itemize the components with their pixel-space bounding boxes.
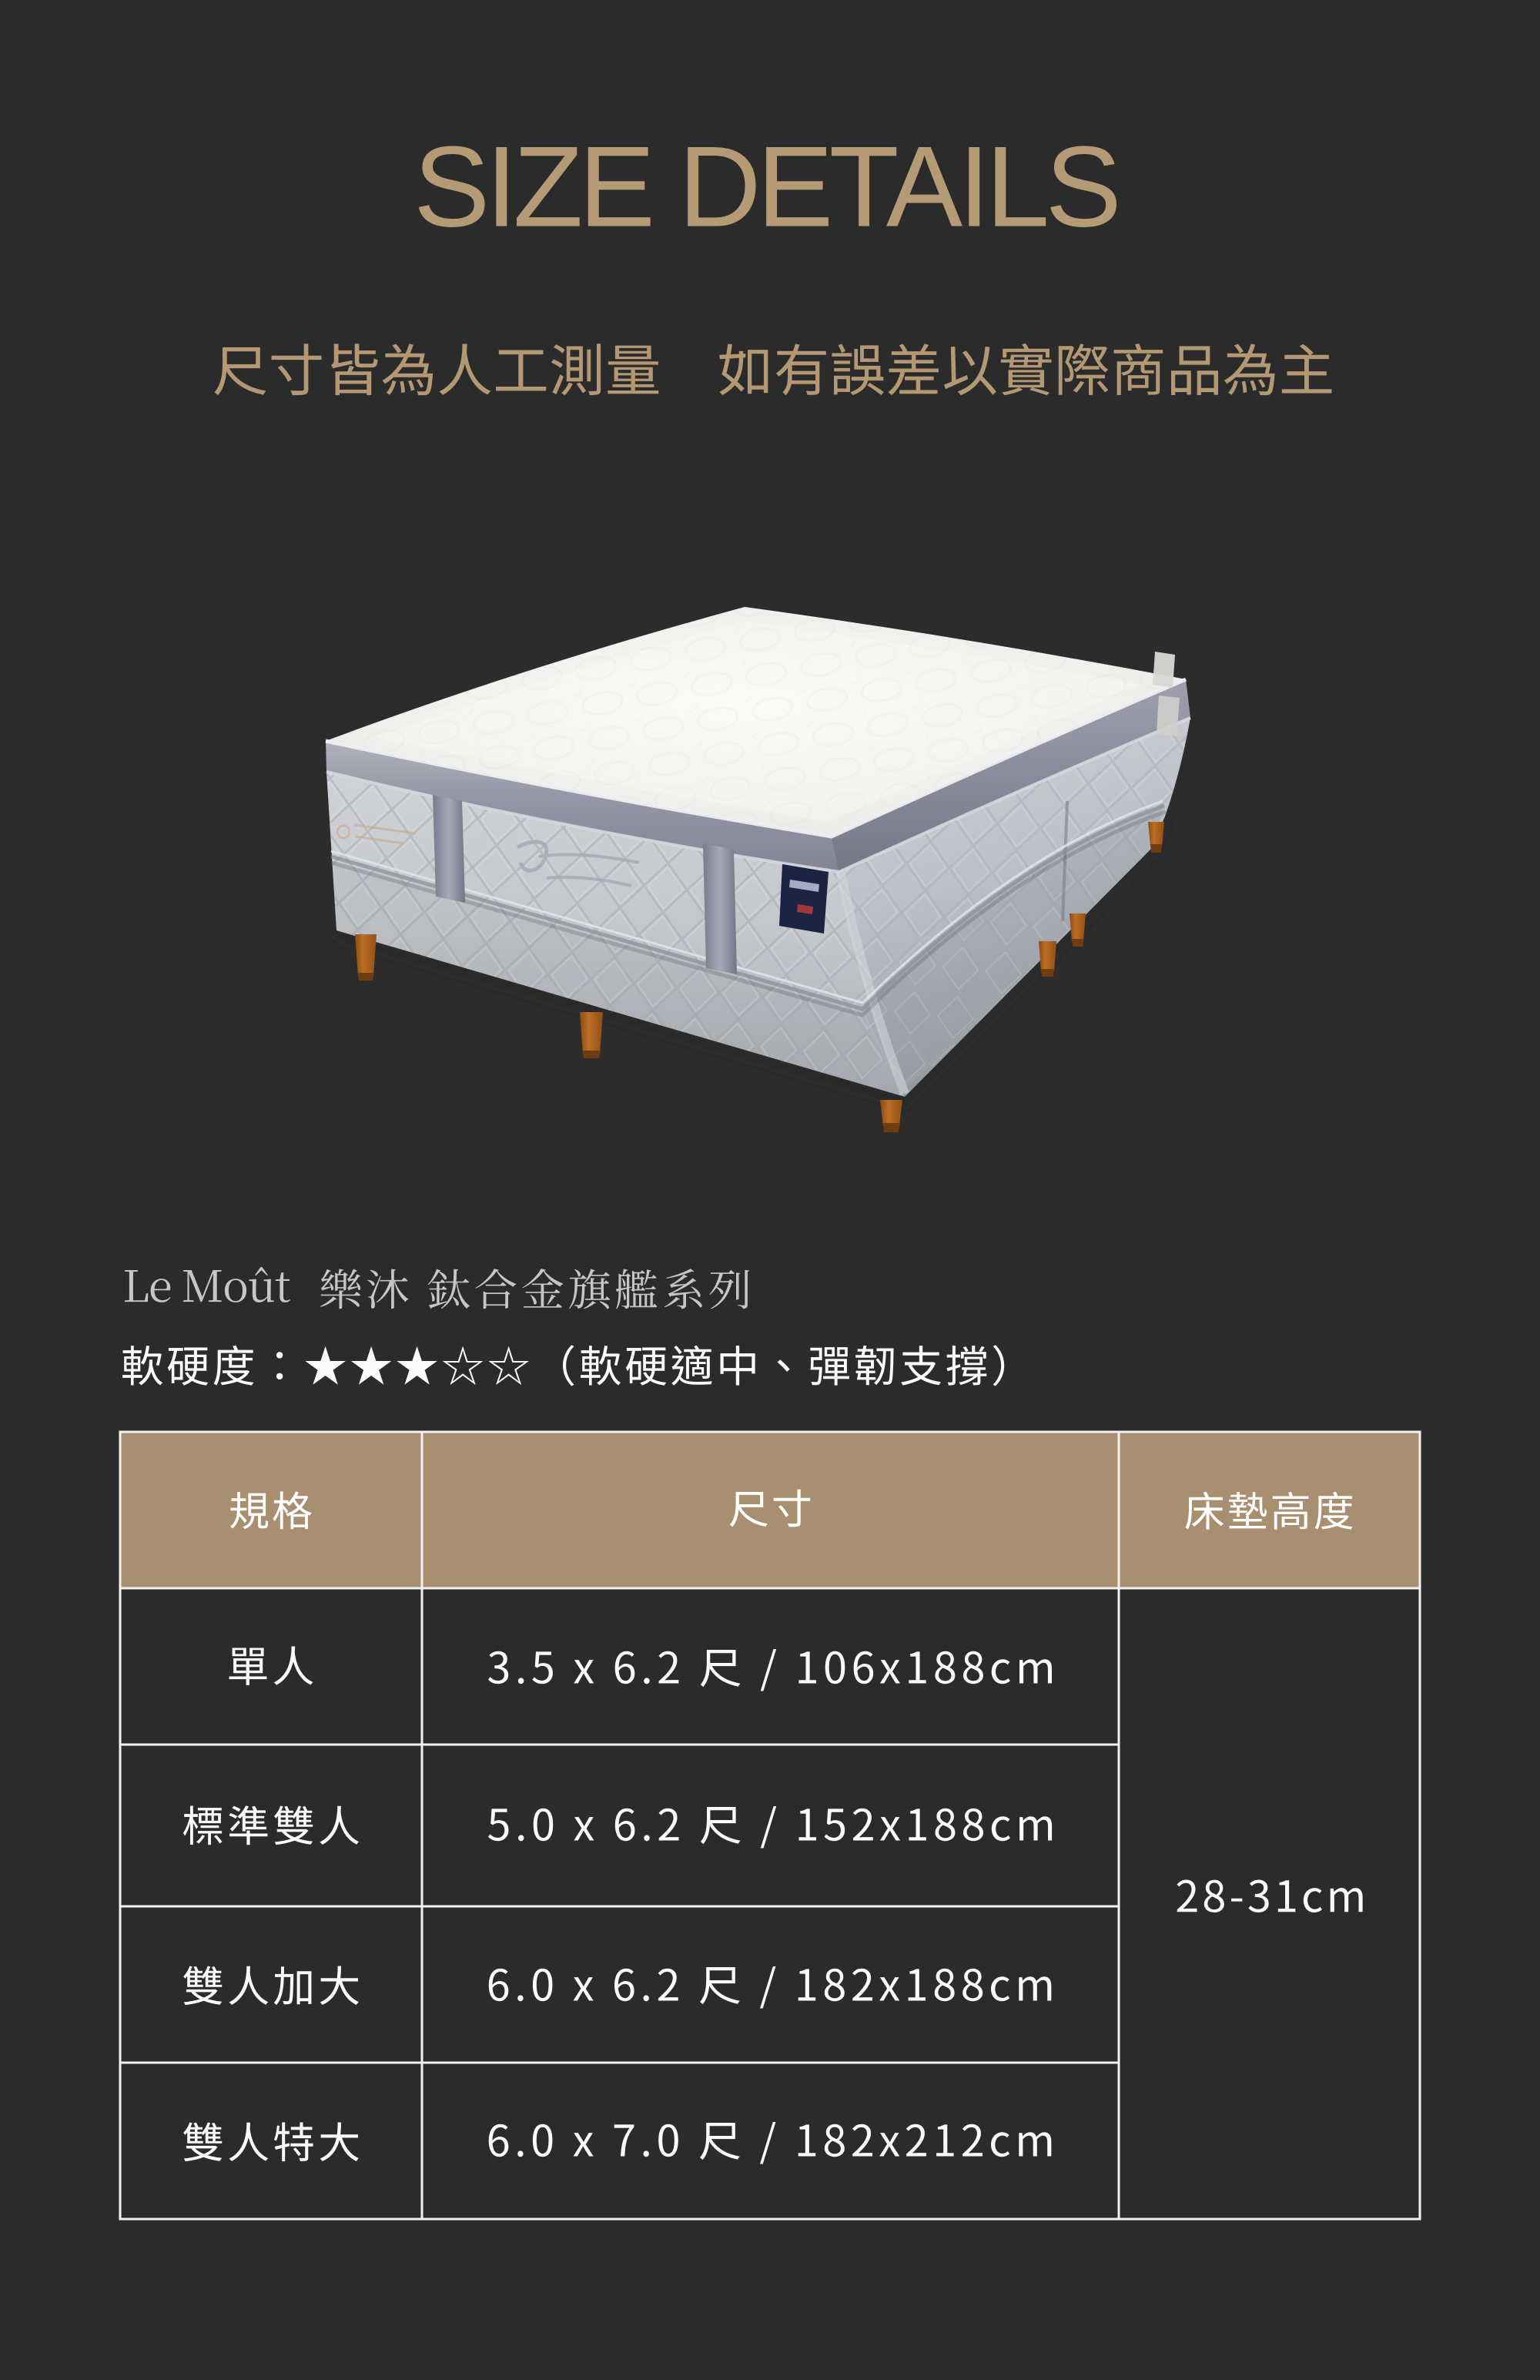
svg-text:SIZE DETAILS: SIZE DETAILS (413, 122, 1117, 251)
